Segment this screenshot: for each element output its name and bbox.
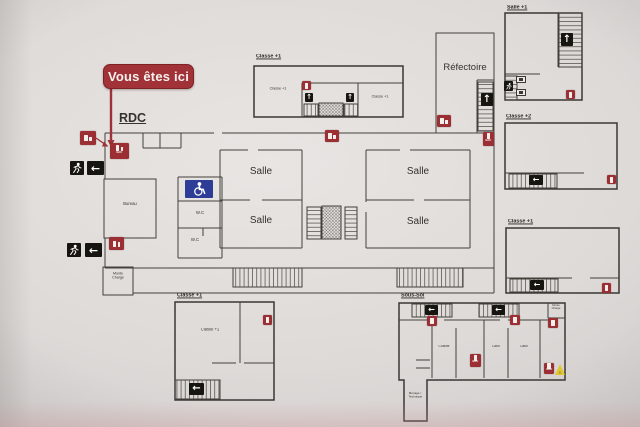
fire-extinguisher-eau-icon: EAU: [483, 132, 494, 146]
room-label-monte-charge-sous-sol: Monte Charge: [551, 304, 562, 310]
section-title-sous-sol: Sous-Sol: [401, 293, 424, 299]
fire-extinguisher-icon: [325, 130, 339, 142]
fire-extinguisher-eau-icon: EAU: [110, 143, 129, 159]
extinguisher-glyph: [551, 320, 555, 326]
room-label-monte-charge: Monte Charge: [111, 272, 125, 280]
room-label-classe: Classe +1: [190, 328, 231, 333]
extinguisher-glyph: [328, 133, 336, 139]
room-label-bureau: Bureau: [109, 202, 151, 207]
exit-arrow-up-icon: ↑: [346, 93, 354, 102]
door-symbol-icon: [516, 76, 526, 83]
floor-title: RDC: [119, 111, 146, 125]
exit-arrow-left-icon: ←: [85, 243, 102, 257]
section-title-classe-plus2: Classe +2: [506, 114, 531, 120]
exit-arrow-left-icon: ←: [425, 305, 438, 315]
room-label-menage-technique: Ménage / Technique: [409, 392, 422, 399]
fire-extinguisher-icon: [437, 115, 451, 127]
you-are-here-label: Vous êtes ici: [108, 69, 189, 84]
exit-arrow-left-icon: ←: [87, 161, 104, 175]
fire-extinguisher-icon: [602, 283, 611, 293]
extinguisher-glyph: [113, 241, 121, 247]
exit-arrow-up-icon: ↑: [305, 93, 313, 102]
fire-extinguisher-icon: [607, 175, 616, 184]
exit-arrow-left-icon: ←: [492, 305, 505, 315]
section-title-classe-plus1-right: Classe +1: [508, 219, 533, 225]
evacuation-plan-photo: Vous êtes ici RDC Réfectoire Salle Salle…: [0, 0, 640, 427]
room-label-classe: Classe +1: [259, 87, 296, 91]
room-label-wc: W.C: [184, 238, 206, 243]
section-title-salle-plus1: Salle +1: [507, 5, 527, 11]
exit-arrow-left-icon: ←: [530, 280, 544, 290]
extinguisher-glyph: [513, 317, 517, 323]
extinguisher-glyph: [305, 83, 309, 89]
room-label-wc: W.C: [189, 211, 211, 216]
fire-extinguisher-icon: [510, 315, 520, 325]
section-title-classe-plus1-bottom: Classe +1: [177, 293, 202, 299]
fire-extinguisher-eau-icon: EAU: [470, 354, 481, 367]
room-label-labo: Labo: [485, 345, 507, 349]
extinguisher-glyph: [430, 318, 434, 324]
fire-extinguisher-icon: [263, 315, 272, 325]
room-label-labo: Labo: [513, 345, 535, 349]
fire-extinguisher-icon: [548, 318, 558, 328]
room-label-refectoire: Réfectoire: [436, 63, 494, 74]
section-title-classe-plus1-top: Classe +1: [256, 54, 281, 60]
fire-extinguisher-icon: [80, 131, 96, 145]
fire-extinguisher-icon: [427, 316, 437, 326]
fire-extinguisher-icon: [302, 81, 311, 90]
room-label-salle: Salle: [231, 215, 291, 227]
door-symbol-icon: [516, 89, 526, 96]
room-label-salle: Salle: [231, 166, 291, 178]
wheelchair-accessible-icon: [185, 180, 213, 198]
extinguisher-glyph: [440, 118, 448, 124]
room-label-salle: Salle: [388, 216, 448, 228]
room-label-classe: Classe +1: [361, 95, 398, 99]
exit-arrow-left-icon: ←: [189, 383, 204, 395]
exit-running-man-icon: [70, 161, 84, 175]
fire-extinguisher-eau-icon: EAU: [544, 363, 554, 374]
exit-arrow-up-icon: ↑: [561, 33, 573, 46]
fire-extinguisher-icon: [109, 237, 124, 250]
extinguisher-glyph: [605, 285, 609, 291]
extinguisher-glyph: [266, 317, 270, 323]
exit-running-man-icon: [504, 81, 513, 91]
room-label-salle: Salle: [388, 166, 448, 178]
fire-extinguisher-icon: [566, 90, 575, 99]
you-are-here-badge: Vous êtes ici: [103, 64, 194, 89]
extinguisher-glyph: [84, 135, 92, 141]
room-label-cuisine: Cuisine: [433, 345, 455, 349]
exit-running-man-icon: [67, 243, 81, 257]
extinguisher-glyph: [610, 177, 614, 183]
exit-arrow-up-icon: ↑: [481, 93, 493, 106]
exit-arrow-left-icon: ←: [529, 175, 543, 185]
extinguisher-glyph: [569, 92, 573, 98]
